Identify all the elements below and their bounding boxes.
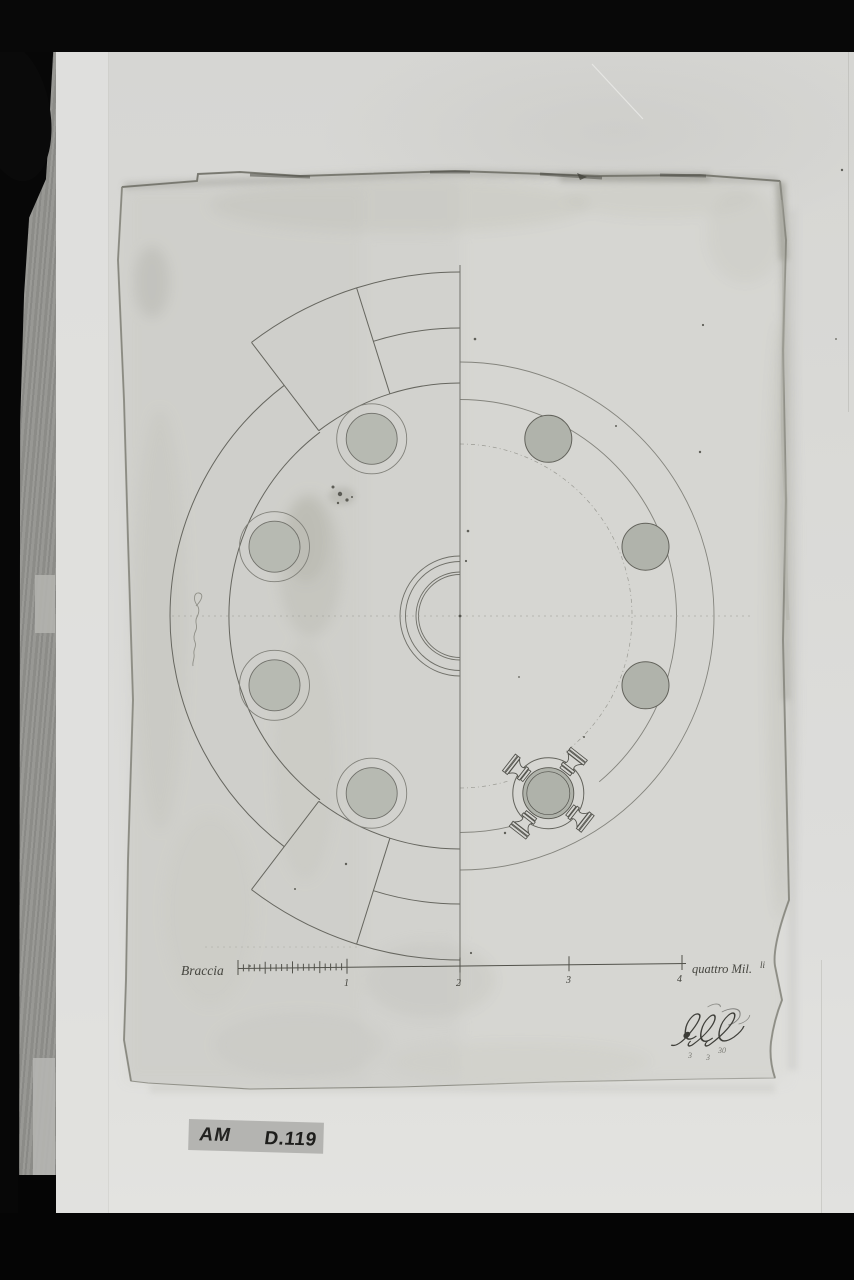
svg-text:quattro Mil.: quattro Mil. (692, 962, 752, 976)
svg-text:1: 1 (344, 978, 349, 989)
svg-text:4: 4 (677, 974, 682, 985)
svg-text:3: 3 (705, 1053, 710, 1062)
svg-text:30: 30 (717, 1046, 726, 1055)
svg-text:3: 3 (687, 1051, 692, 1060)
svg-text:2: 2 (456, 978, 461, 989)
svg-text:li: li (760, 960, 766, 970)
svg-text:3: 3 (565, 975, 571, 986)
svg-text:Braccia: Braccia (181, 963, 224, 978)
